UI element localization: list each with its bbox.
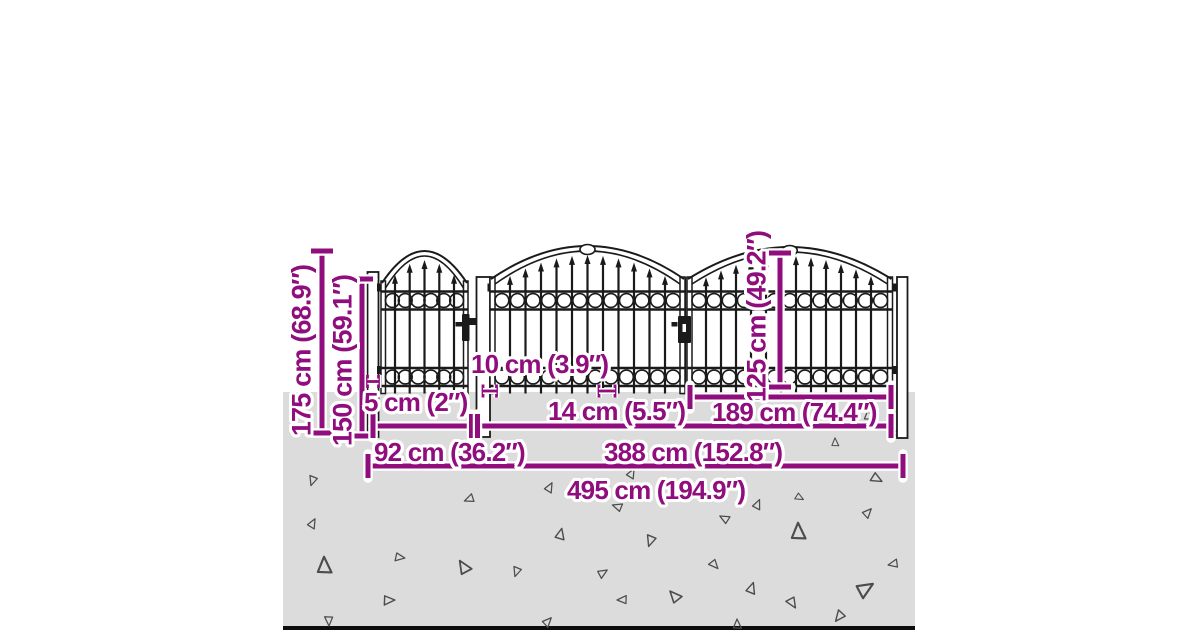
spear-finial [793,256,799,265]
dim-label-leaf-width: 189 cm (74.4″) [712,399,877,425]
spear-finial [823,260,829,269]
spear-finial [853,269,859,278]
spear-finial [422,260,428,269]
spear-finial [718,270,724,279]
fence-post [897,277,908,438]
dim-label-single-gate-width: 92 cm (36.2″) [374,439,525,465]
dim-label-hinge-post-width: 10 cm (3.9″) [471,351,608,377]
dim-label-bar-spacing: 14 cm (5.5″) [548,398,685,424]
fence-illustration [0,0,1200,630]
spear-finial [523,268,529,277]
spear-finial [585,255,591,264]
arch-ornament [580,245,595,255]
dim-label-total-width: 495 cm (194.9″) [567,477,745,503]
spear-finial [647,268,653,277]
spear-finial [703,277,709,286]
dim-label-double-gate-width: 388 cm (152.8″) [604,439,782,465]
single-gate [381,251,468,394]
spear-finial [436,264,442,273]
spear-finial [616,258,622,267]
spear-finial [600,256,606,265]
double-gate-right-leaf [687,246,893,394]
spear-finial [407,264,413,273]
spear-finial [838,264,844,273]
spear-finial [631,263,637,272]
spear-finial [868,276,874,285]
spear-finial [554,258,560,267]
spear-finial [662,276,668,285]
spear-finial [538,263,544,272]
product-dimension-diagram: 175 cm (68.9″) 150 cm (59.1″) 125 cm (49… [0,0,1200,630]
dim-label-post-width: 5 cm (2″) [364,389,468,415]
dim-label-fence-height: 150 cm (59.1″) [330,241,357,481]
spear-finial [569,256,575,265]
spear-finial [507,276,513,285]
spear-finial [733,265,739,274]
spear-finial [808,257,814,266]
dim-label-overall-height: 175 cm (68.9″) [289,231,316,471]
